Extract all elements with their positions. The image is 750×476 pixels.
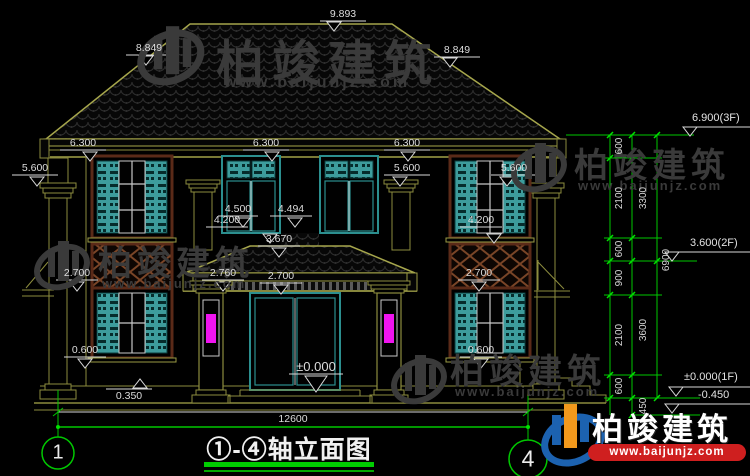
- level-2f: 3.600(2F): [690, 237, 738, 249]
- dim-4200-right: 4.200: [468, 215, 494, 226]
- dim-overall-width: 12600: [278, 414, 307, 425]
- watermark-url: www.baijunjz.com: [578, 178, 722, 193]
- dim-4200-left: 4.200: [214, 215, 240, 226]
- chain-seg: 600: [615, 138, 625, 155]
- dim-0600-left: 0.600: [72, 345, 98, 356]
- center-pilaster-right: [384, 180, 418, 250]
- axis-number-4: 4: [522, 446, 535, 473]
- drawing-title: ①-④轴立面图: [206, 430, 371, 466]
- dim-5600-mid: 5.600: [394, 163, 420, 174]
- window-2f-left: [88, 156, 176, 242]
- dim-porch-ridge: 3.670: [266, 234, 292, 245]
- dim-porch-beam: 2.760: [210, 268, 236, 279]
- entry-steps: [216, 390, 384, 403]
- dim-5600-left: 5.600: [22, 163, 48, 174]
- dim-eave-left: 6.300: [70, 138, 96, 149]
- magenta-sidelight-left: [206, 314, 216, 343]
- dim-porch-clear: 2.700: [268, 271, 294, 282]
- chain-seg: 600: [615, 241, 625, 258]
- axis-number-1: 1: [52, 442, 63, 465]
- magenta-sidelight-right: [384, 314, 394, 343]
- lattice-railing-right: [450, 244, 530, 288]
- dim-0600-right: 0.600: [468, 345, 494, 356]
- brand-name: 柏竣建筑: [592, 404, 732, 449]
- dim-2700-left: 2.700: [64, 268, 90, 279]
- dim-hip-right: 8.849: [444, 45, 470, 56]
- title-underline-thick: [204, 462, 374, 467]
- chain-subtotal: 3300: [639, 187, 649, 209]
- watermark-logo-icon: [136, 23, 208, 88]
- porch-column-left: [190, 281, 232, 403]
- dim-sill-4494: 4.494: [278, 204, 304, 215]
- chain-seg: 600: [615, 378, 625, 395]
- dim-eave-center: 6.300: [253, 138, 279, 149]
- window-1f-left: [88, 288, 176, 362]
- dim-hip-left: 8.849: [136, 43, 162, 54]
- brand-url-ribbon: www.baijunjz.com: [588, 444, 746, 461]
- watermark-url: www.baijunjz.com: [455, 384, 599, 399]
- level-3f: 6.900(3F): [692, 112, 740, 124]
- dim-2700-right: 2.700: [466, 268, 492, 279]
- dim-ridge-height: 9.893: [330, 9, 356, 20]
- watermark-logo-icon: [33, 238, 93, 292]
- watermark-url: www.baijunjz.com: [224, 74, 410, 92]
- dim-eave-right: 6.300: [394, 138, 420, 149]
- level-1f: ±0.000(1F): [684, 371, 738, 383]
- chain-seg: 2100: [615, 324, 625, 346]
- watermark-logo-icon: [390, 352, 450, 406]
- window-2f-center-right: [320, 156, 378, 233]
- dim-floor-level: ±0.000: [296, 361, 336, 372]
- chain-overall: 6900: [662, 249, 672, 271]
- dim-5600-right: 5.600: [501, 163, 527, 174]
- entry-door: [250, 293, 340, 390]
- chain-subtotal: 3600: [639, 319, 649, 341]
- chain-seg: 2100: [615, 187, 625, 209]
- chain-seg: 900: [615, 270, 625, 287]
- dim-plinth-0350: 0.350: [116, 391, 142, 402]
- cad-elevation-screenshot: 柏竣建筑 www.baijunjz.com 柏竣建筑 www.baijunjz.…: [0, 0, 750, 476]
- level-ground: -0.450: [698, 389, 729, 401]
- title-underline-thin: [204, 470, 374, 472]
